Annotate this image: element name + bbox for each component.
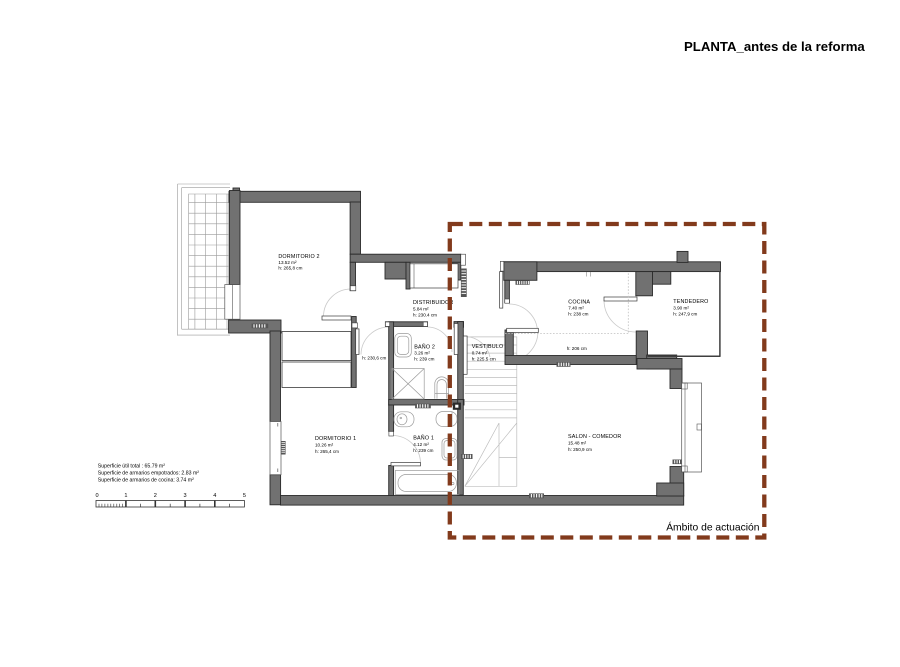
svg-text:13.52 m²: 13.52 m² <box>278 260 297 265</box>
svg-text:TENDEDERO: TENDEDERO <box>673 299 708 305</box>
svg-text:PLANTA_antes de la reforma: PLANTA_antes de la reforma <box>684 39 865 54</box>
svg-text:h: 239 cm: h: 239 cm <box>413 448 433 453</box>
svg-text:VESTIBULO: VESTIBULO <box>472 344 504 350</box>
svg-text:4: 4 <box>213 493 216 499</box>
svg-text:DORMITORIO 1: DORMITORIO 1 <box>315 436 356 442</box>
svg-text:h: 206 cm: h: 206 cm <box>567 346 587 351</box>
svg-text:h: 238 cm: h: 238 cm <box>568 312 588 317</box>
svg-text:10.26 m²: 10.26 m² <box>315 443 334 448</box>
svg-text:h: 230,6 cm: h: 230,6 cm <box>362 355 386 360</box>
svg-text:DISTRIBUIDOR: DISTRIBUIDOR <box>413 300 453 306</box>
svg-text:3.90 m²: 3.90 m² <box>673 305 689 310</box>
svg-text:h: 225.5 cm: h: 225.5 cm <box>472 356 496 361</box>
svg-text:Superficie de armarios empotra: Superficie de armarios empotrados: 2.83 … <box>98 471 199 477</box>
svg-text:15.48 m²: 15.48 m² <box>568 440 587 445</box>
svg-text:h: 250,9 cm: h: 250,9 cm <box>568 447 592 452</box>
svg-text:3: 3 <box>184 493 187 499</box>
svg-text:COCINA: COCINA <box>568 299 590 305</box>
svg-text:h: 247,9 cm: h: 247,9 cm <box>673 311 697 316</box>
svg-text:1: 1 <box>124 493 127 499</box>
svg-text:SALON - COMEDOR: SALON - COMEDOR <box>568 434 621 440</box>
svg-text:Superficie de armarios de coci: Superficie de armarios de cocina: 3.74 m… <box>98 478 194 484</box>
svg-text:h: 265,4 cm: h: 265,4 cm <box>315 449 339 454</box>
svg-text:BAÑO 1: BAÑO 1 <box>413 435 434 442</box>
svg-text:2: 2 <box>154 493 157 499</box>
svg-text:4.12 m²: 4.12 m² <box>413 442 429 447</box>
svg-text:5: 5 <box>243 493 246 499</box>
svg-text:0: 0 <box>95 493 98 499</box>
svg-text:h: 239 cm: h: 239 cm <box>414 357 434 362</box>
svg-text:Superficie útil total : 65.79: Superficie útil total : 65.79 m² <box>98 464 165 470</box>
svg-text:5.84 m²: 5.84 m² <box>413 306 429 311</box>
svg-text:7.40 m²: 7.40 m² <box>568 306 584 311</box>
svg-text:Ámbito de actuación: Ámbito de actuación <box>666 521 760 534</box>
svg-text:h: 230.4 cm: h: 230.4 cm <box>413 312 437 317</box>
svg-text:0.74 m²: 0.74 m² <box>472 350 488 355</box>
svg-text:BAÑO 2: BAÑO 2 <box>414 344 435 351</box>
svg-text:3.26 m²: 3.26 m² <box>414 351 430 356</box>
svg-text:h: 265,8 cm: h: 265,8 cm <box>278 266 302 271</box>
